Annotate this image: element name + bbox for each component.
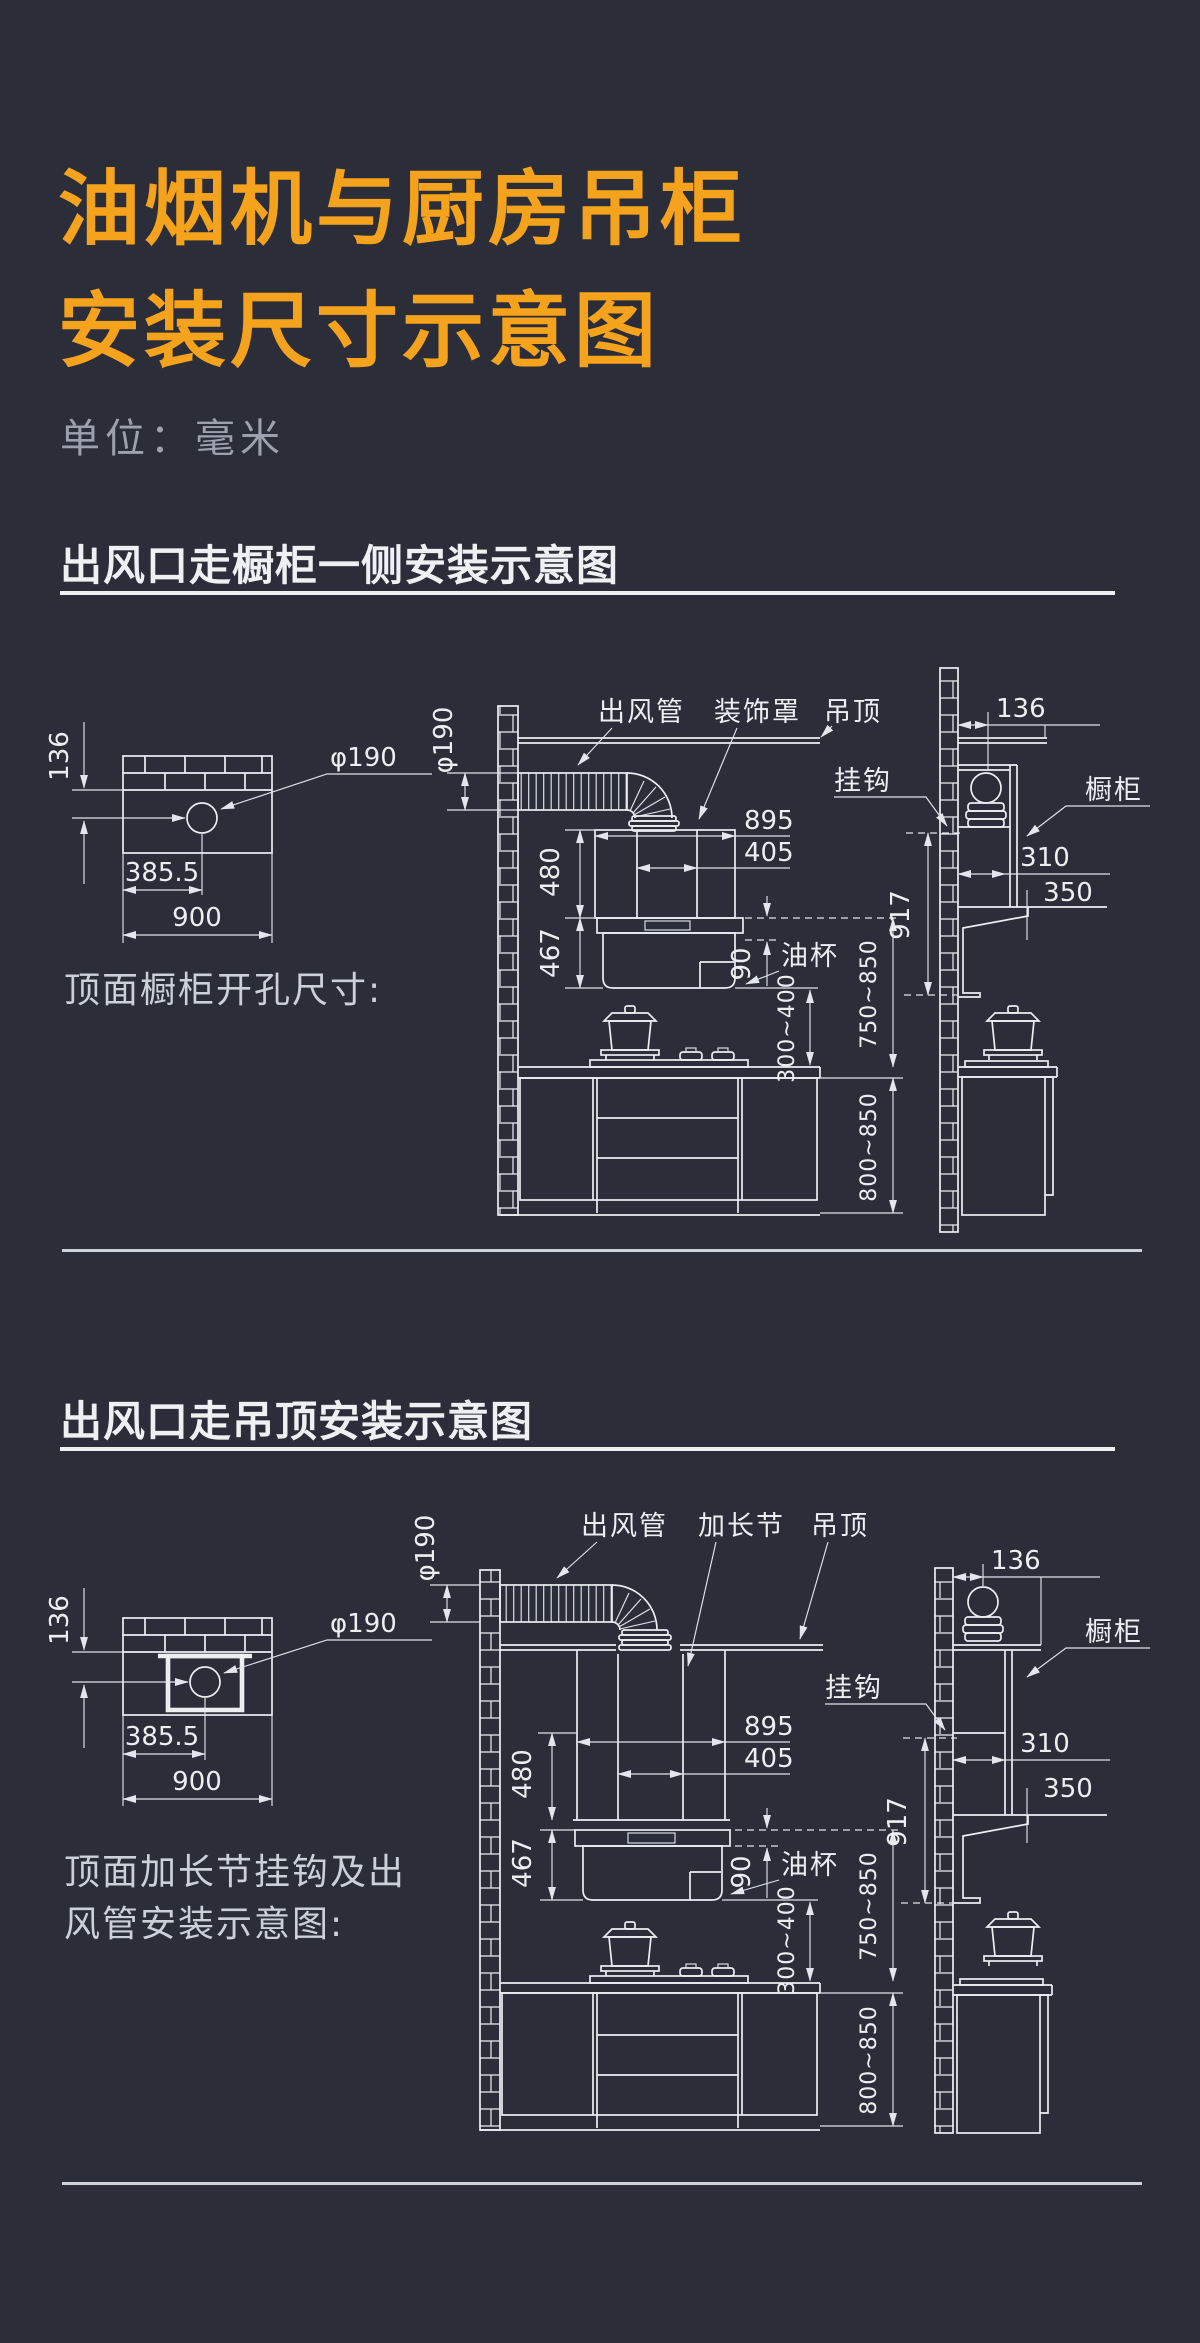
hood-vent-panel: [628, 1833, 675, 1843]
dim-counter-height: 800~850: [857, 1092, 882, 1201]
base-cabinet: [480, 1993, 820, 2130]
dim-hood-depth: 350: [1043, 878, 1093, 908]
dim-hook-height: 917: [883, 1797, 913, 1847]
dim-body-height: 467: [536, 928, 566, 978]
hood-side-profile: [958, 907, 1028, 997]
dim-body-height: 467: [508, 1838, 538, 1888]
page: 油烟机与厨房吊柜 安装尺寸示意图 单位：毫米 出风口走橱柜一侧安装示意图: [0, 0, 1200, 2343]
page-title-line1: 油烟机与厨房吊柜: [58, 142, 746, 261]
dim-counter-height: 800~850: [857, 2005, 882, 2114]
dim-upper-height: 480: [536, 847, 566, 897]
base-cabinet-side: [958, 1067, 1057, 1215]
brick-band: [123, 756, 272, 790]
dim-wall-to-hole: 136: [45, 731, 75, 781]
dim-side-offset: 136: [991, 1546, 1041, 1576]
label-cabinet: 橱柜: [1085, 775, 1143, 806]
hood-side-profile: [953, 1815, 1028, 1903]
section1-underline: [60, 591, 1115, 595]
dim-flue-width: 405: [744, 1744, 794, 1774]
section1-drawing: 136 φ190 385.5 900 顶面橱柜开孔尺寸: 吊顶 φ190 出风管: [0, 640, 1200, 1260]
bottom-divider: [62, 2182, 1142, 2185]
hood-visor: [597, 918, 743, 933]
dim-hole-offset: 385.5: [125, 858, 199, 888]
dim-duct-dia: φ190: [411, 1515, 441, 1582]
duct-section: [971, 773, 1001, 803]
pot-on-counter: [965, 1006, 1048, 1067]
hood-vent-panel: [645, 921, 690, 930]
duct-flange: [963, 1617, 1003, 1641]
dim-wall-to-hole: 136: [45, 1595, 75, 1645]
vent-hole: [187, 803, 217, 833]
pot-and-hob: [590, 1006, 748, 1067]
wall: [498, 706, 518, 1215]
dim-hood-width: 895: [744, 1712, 794, 1742]
ceiling-line: [518, 738, 820, 743]
section2-heading: 出风口走吊顶安装示意图: [60, 1388, 533, 1449]
wall: [935, 1568, 953, 2133]
s2-caption-line2: 风管安装示意图:: [64, 1904, 344, 1945]
pot-on-counter: [960, 1912, 1043, 1985]
wall: [940, 668, 958, 1232]
label-oil-cup: 油杯: [781, 1850, 839, 1881]
dim-hood-depth: 350: [1043, 1774, 1093, 1804]
s1-left-diagram: 136 φ190 385.5 900 顶面橱柜开孔尺寸:: [45, 722, 432, 1011]
duct-flange: [966, 803, 1006, 827]
duct-flange: [629, 816, 679, 831]
dim-oil-cup-height: 90: [727, 1855, 757, 1888]
label-duct: 出风管: [581, 1511, 668, 1542]
dim-oil-cup-height: 90: [727, 947, 757, 980]
dim-hook-height: 917: [886, 890, 916, 940]
flue-and-cover: [573, 1650, 730, 1820]
dim-hole-dia: φ190: [330, 1609, 397, 1639]
brick-band: [123, 1618, 272, 1652]
dim-hole-dia: φ190: [330, 743, 397, 773]
ceiling-line: [958, 738, 1047, 743]
hood-upper-body: [595, 830, 735, 918]
dim-duct-dia: φ190: [429, 707, 459, 774]
dim-hood-clearance: 750~850: [857, 1851, 882, 1960]
flex-duct: [500, 1585, 612, 1622]
label-extension: 加长节: [698, 1511, 785, 1542]
section1-heading: 出风口走橱柜一侧安装示意图: [60, 532, 619, 593]
section-divider: [62, 1249, 1142, 1252]
label-hook: 挂钩: [825, 1673, 883, 1704]
dim-cabinet-width: 900: [172, 903, 222, 933]
label-cabinet: 橱柜: [1085, 1617, 1143, 1648]
dim-hood-clearance: 750~850: [857, 939, 882, 1048]
duct-elbow: [627, 773, 672, 818]
flex-duct: [518, 773, 627, 810]
section2-drawing: 136 φ190 385.5 900 顶面加长节挂钩及出 风管安装示意图: φ1…: [0, 1490, 1200, 2200]
dim-side-offset: 136: [996, 694, 1046, 724]
hood-visor: [575, 1830, 730, 1846]
label-oil-cup: 油杯: [781, 941, 839, 972]
duct-section: [968, 1587, 998, 1617]
section2-underline: [60, 1447, 1115, 1451]
dim-cabinet-depth: 310: [1020, 1729, 1070, 1759]
flue-cover: [637, 830, 697, 918]
base-cabinet: [500, 1078, 820, 1215]
label-decor-cover: 装饰罩: [714, 697, 801, 728]
pot-and-hob: [590, 1922, 748, 1983]
unit-note: 单位：毫米: [60, 406, 285, 464]
dim-flue-width: 405: [744, 838, 794, 868]
dim-hood-width: 895: [744, 806, 794, 836]
s1-middle-diagram: 吊顶 φ190 出风管 装饰罩 895 405: [429, 697, 903, 1215]
label-duct: 出风管: [598, 697, 685, 728]
vent-hole: [190, 1667, 220, 1697]
dim-cabinet-width: 900: [172, 1767, 222, 1797]
label-hook: 挂钩: [834, 766, 892, 797]
countertop: [500, 1983, 820, 1993]
wall: [480, 1570, 500, 2130]
s2-caption-line1: 顶面加长节挂钩及出: [64, 1852, 406, 1893]
label-ceiling: 吊顶: [811, 1511, 869, 1542]
page-title-line2: 安装尺寸示意图: [58, 264, 660, 383]
duct-flange: [619, 1630, 671, 1650]
s1-caption: 顶面橱柜开孔尺寸:: [64, 970, 382, 1011]
s2-left-diagram: 136 φ190 385.5 900 顶面加长节挂钩及出 风管安装示意图:: [45, 1588, 432, 1945]
dim-cabinet-depth: 310: [1020, 843, 1070, 873]
base-cabinet-side: [953, 1985, 1052, 2133]
dim-hole-offset: 385.5: [125, 1722, 199, 1752]
hood-lower-body: [603, 933, 735, 988]
duct-elbow: [612, 1585, 657, 1630]
label-ceiling: 吊顶: [824, 697, 882, 728]
hood-lower-body: [583, 1846, 722, 1900]
s2-middle-diagram: φ190 出风管 加长节 吊顶 895: [411, 1511, 903, 2130]
dim-upper-height: 480: [508, 1749, 538, 1799]
dim-hob-clearance: 300~400: [775, 1885, 800, 1994]
